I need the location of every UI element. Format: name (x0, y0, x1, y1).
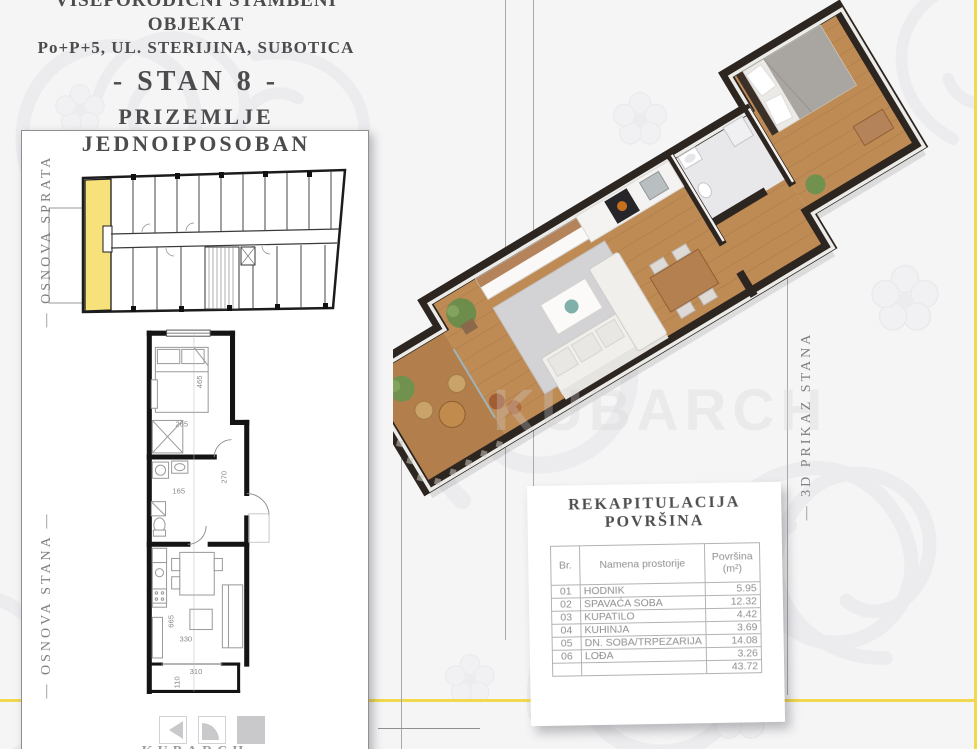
room-area: 4.42 (706, 608, 761, 622)
apartment-type-label: JEDNOIPOSOBAN (16, 130, 376, 158)
logo-square-icon (237, 716, 265, 744)
apartment-floor-plan: 465 265 165 270 665 330 310 110 (119, 323, 275, 729)
dim-bath-width: 165 (172, 487, 185, 496)
room-area: 3.26 (706, 647, 761, 661)
room-area: 3.69 (706, 621, 761, 635)
page: VIŠEPORODIČNI STAMBENI OBJEKAT Po+P+5, U… (0, 0, 977, 749)
dim-living-length: 665 (167, 615, 176, 628)
dim-living-width: 330 (179, 635, 192, 644)
floor-label: PRIZEMLJE (16, 103, 376, 131)
building-floor-plan (47, 168, 351, 318)
col-header-br: Br. (550, 546, 580, 586)
title-block: VIŠEPORODIČNI STAMBENI OBJEKAT Po+P+5, U… (16, 0, 376, 158)
render-3d-label: — 3D PRIKAZ STANA (799, 276, 815, 576)
room-area: 14.08 (706, 634, 761, 648)
recap-header-row: Br. Namena prostorije Površina (m²) (550, 543, 760, 586)
watermark-text: KUBARCH (493, 378, 828, 443)
total-empty-cell (553, 663, 582, 677)
row-number: 04 (552, 624, 581, 638)
render-3d: KUBARCH (393, 0, 941, 512)
row-number: 02 (551, 598, 580, 612)
dim-bedroom-length: 465 (195, 376, 204, 389)
row-number: 06 (552, 650, 581, 664)
apartment-number: - STAN 8 - (16, 64, 376, 99)
total-empty-cell (582, 661, 707, 676)
row-number: 05 (552, 637, 581, 651)
room-area: 12.32 (705, 595, 760, 609)
stairwell (205, 247, 239, 309)
total-area: 43.72 (706, 660, 761, 674)
room-area: 5.95 (705, 582, 760, 596)
recap-panel: REKAPITULACIJA POVRŠINA Br. Namena prost… (527, 482, 785, 726)
logo-text: KUBARCH (22, 744, 368, 749)
recap-table: Br. Namena prostorije Površina (m²) 01 H… (550, 542, 762, 677)
horizontal-rule-bottom (378, 728, 480, 729)
address-line: Po+P+5, UL. STERIJINA, SUBOTICA (16, 37, 376, 58)
logo-quarter-circle-icon (198, 716, 226, 744)
dim-loggia-depth: 110 (173, 676, 182, 688)
row-number: 01 (551, 585, 580, 599)
total-row: 43.72 (553, 660, 762, 677)
dim-loggia-width: 310 (190, 667, 203, 676)
logo-triangle-icon (159, 716, 187, 744)
building-title: VIŠEPORODIČNI STAMBENI OBJEKAT (16, 0, 376, 37)
floor-plan-label: — OSNOVA SPRATA (39, 91, 55, 391)
unit-plan-label: — OSNOVA STANA — (39, 455, 55, 749)
logo (159, 716, 279, 744)
dim-bath-length: 270 (219, 471, 228, 484)
row-number: 03 (552, 611, 581, 625)
col-header-name: Namena prostorije (579, 544, 705, 585)
plans-panel: 465 265 165 270 665 330 310 110 KUBARCH (21, 130, 369, 749)
col-header-area-line1: Površina (708, 550, 756, 563)
dim-bedroom-width: 265 (175, 420, 188, 429)
col-header-area-line2: (m²) (708, 562, 756, 575)
